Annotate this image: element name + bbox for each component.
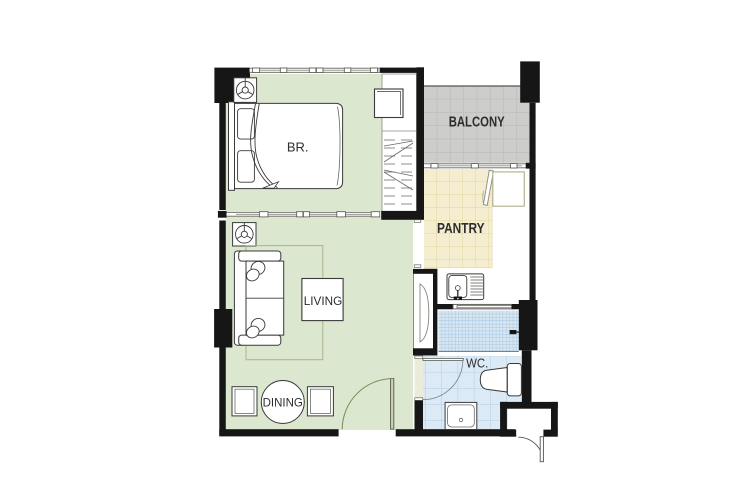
svg-text:PANTRY: PANTRY: [437, 221, 485, 237]
svg-text:BALCONY: BALCONY: [449, 114, 505, 130]
svg-text:BR.: BR.: [287, 139, 309, 154]
svg-text:LIVING: LIVING: [304, 294, 342, 308]
svg-text:DINING: DINING: [263, 397, 303, 410]
svg-text:WC.: WC.: [466, 357, 488, 371]
